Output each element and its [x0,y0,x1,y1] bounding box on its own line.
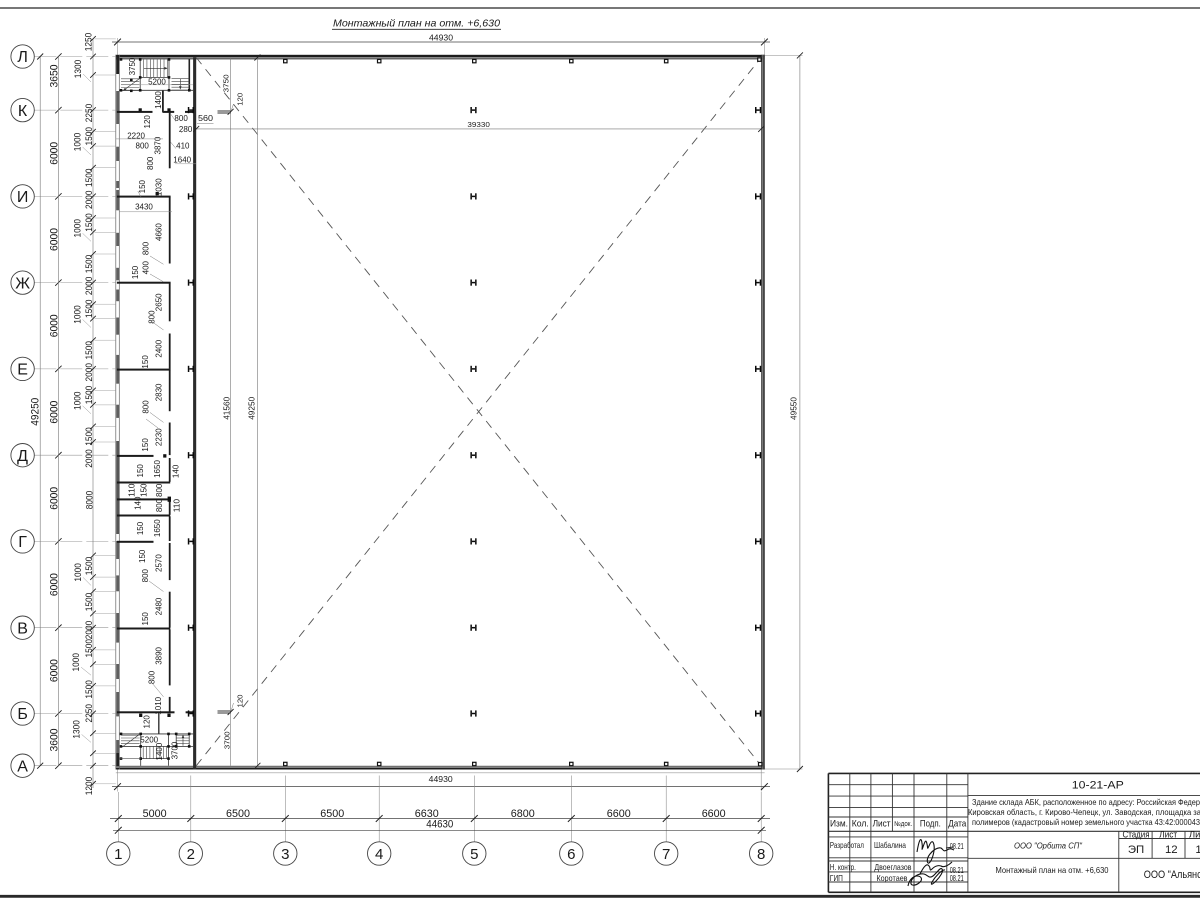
svg-text:А: А [17,758,28,775]
svg-text:800: 800 [140,569,150,583]
svg-text:1500: 1500 [84,386,95,405]
svg-text:ЭП: ЭП [1128,844,1144,856]
svg-text:1400: 1400 [153,91,163,109]
svg-text:1000: 1000 [73,133,84,152]
svg-text:1000: 1000 [73,563,84,582]
svg-text:150: 150 [137,180,147,194]
svg-text:44630: 44630 [426,819,453,831]
svg-text:150: 150 [137,549,147,563]
svg-text:2: 2 [187,846,195,863]
svg-text:Монтажный план на отм. +6,630: Монтажный план на отм. +6,630 [333,19,500,30]
svg-text:800: 800 [141,242,151,256]
svg-text:1300: 1300 [73,60,84,79]
svg-text:1500: 1500 [84,427,95,446]
svg-text:Лист: Лист [1159,829,1178,839]
svg-text:44930: 44930 [429,33,453,42]
svg-text:3: 3 [281,846,289,863]
svg-text:Разработал: Разработал [830,840,864,850]
svg-text:К: К [18,103,28,120]
svg-text:12: 12 [1165,844,1178,856]
svg-text:6000: 6000 [48,573,60,596]
svg-text:2480: 2480 [154,597,164,615]
svg-text:1: 1 [114,846,122,863]
svg-text:1500: 1500 [84,341,95,360]
svg-text:Ж: Ж [15,275,30,292]
svg-text:2000: 2000 [84,449,95,468]
svg-text:49550: 49550 [789,396,798,420]
svg-text:800: 800 [174,113,188,123]
svg-text:3650: 3650 [48,65,60,88]
svg-text:2250: 2250 [84,104,95,123]
svg-text:Коротаев: Коротаев [877,873,909,883]
svg-text:3700: 3700 [170,741,180,759]
svg-text:1500: 1500 [84,255,95,274]
svg-text:полимеров (кадастровый номер з: полимеров (кадастровый номер земельного … [972,817,1200,827]
svg-text:№док.: №док. [894,821,912,828]
svg-text:6000: 6000 [48,142,60,165]
svg-text:Г: Г [18,534,27,551]
svg-text:Д: Д [17,448,28,465]
svg-text:8000: 8000 [85,491,96,510]
svg-text:1030: 1030 [153,178,163,196]
svg-text:3870: 3870 [152,136,162,154]
svg-text:49250: 49250 [248,396,257,420]
svg-text:6000: 6000 [48,228,60,251]
svg-text:1250: 1250 [84,33,95,52]
svg-text:39330: 39330 [467,120,490,129]
svg-text:150: 150 [140,612,150,626]
svg-text:410: 410 [176,140,190,150]
svg-text:110: 110 [172,499,182,513]
svg-text:2650: 2650 [153,293,163,311]
svg-text:Дата: Дата [948,819,967,829]
svg-text:1640: 1640 [173,155,191,165]
svg-text:Лис: Лис [1189,829,1200,839]
svg-text:5200: 5200 [148,77,166,87]
svg-text:150: 150 [135,522,145,536]
svg-text:150: 150 [138,483,148,497]
svg-text:6600: 6600 [607,808,631,820]
svg-text:6800: 6800 [511,808,535,820]
svg-text:44930: 44930 [429,775,453,784]
svg-text:Н. контр.: Н. контр. [830,862,856,872]
svg-text:3890: 3890 [154,647,164,665]
svg-text:800: 800 [140,400,150,414]
svg-text:ООО "Орбита СП": ООО "Орбита СП" [1014,840,1083,850]
svg-text:140: 140 [133,496,143,510]
svg-text:120: 120 [236,93,245,106]
svg-text:120: 120 [142,715,152,729]
svg-text:Здание склада АБК, расположенн: Здание склада АБК, расположенное по адре… [972,797,1200,807]
svg-text:10-21-АР: 10-21-АР [1072,779,1124,791]
svg-text:Кол.: Кол. [852,819,869,829]
svg-text:4: 4 [375,846,383,863]
svg-text:800: 800 [136,141,150,151]
svg-text:1000: 1000 [73,305,84,324]
svg-text:1500: 1500 [84,593,95,612]
svg-text:5000: 5000 [143,808,167,820]
svg-text:280: 280 [179,124,193,134]
svg-text:2230: 2230 [153,428,163,446]
svg-text:1010: 1010 [153,697,163,715]
svg-text:1000: 1000 [73,392,84,411]
svg-text:3700: 3700 [222,731,231,749]
svg-text:110: 110 [126,483,136,497]
svg-text:1300: 1300 [72,720,83,739]
svg-text:6: 6 [567,846,575,863]
svg-text:6500: 6500 [226,808,250,820]
svg-text:1500: 1500 [84,680,95,699]
svg-text:1500: 1500 [84,127,95,146]
svg-text:Шабалина: Шабалина [874,840,906,850]
svg-text:8: 8 [757,846,765,863]
svg-text:800: 800 [145,156,155,170]
svg-text:3430: 3430 [135,202,153,212]
svg-text:6000: 6000 [48,659,60,682]
svg-text:150: 150 [140,355,150,369]
svg-text:2570: 2570 [154,554,164,572]
svg-text:140: 140 [171,464,181,478]
svg-text:2400: 2400 [153,340,163,358]
svg-text:1000: 1000 [73,219,84,238]
svg-text:800: 800 [146,671,156,685]
svg-text:41560: 41560 [223,396,232,420]
svg-text:1500: 1500 [84,213,95,232]
svg-text:3750: 3750 [127,57,137,75]
svg-text:Изм.: Изм. [830,819,848,829]
svg-text:ГИП: ГИП [830,873,843,883]
svg-text:150: 150 [135,464,145,478]
svg-text:2220: 2220 [127,131,145,141]
svg-text:2000: 2000 [84,277,95,296]
svg-text:Двоеглазов: Двоеглазов [874,862,911,872]
svg-text:6000: 6000 [48,487,60,510]
svg-text:Кировская область, г. Кирово-Ч: Кировская область, г. Кирово-Чепецк, ул.… [968,807,1200,817]
svg-text:1500: 1500 [84,299,95,318]
svg-text:120: 120 [235,695,244,708]
svg-text:Лист: Лист [873,819,892,829]
svg-text:ООО "Альянс: ООО "Альянс [1144,869,1200,881]
svg-text:6500: 6500 [320,808,344,820]
svg-text:1: 1 [1195,844,1200,856]
svg-text:800: 800 [154,499,164,513]
svg-text:49250: 49250 [29,398,41,426]
svg-text:6000: 6000 [48,401,60,424]
svg-text:150: 150 [130,265,140,279]
svg-text:1500: 1500 [84,557,95,576]
svg-text:И: И [17,189,29,206]
svg-text:4660: 4660 [153,223,163,241]
svg-text:1500: 1500 [84,168,95,187]
svg-text:560: 560 [198,114,213,123]
svg-text:2000: 2000 [84,363,95,382]
svg-text:В: В [17,620,28,637]
svg-text:3600: 3600 [48,729,60,752]
svg-text:1200: 1200 [84,777,95,796]
svg-text:Подп.: Подп. [920,819,941,829]
svg-text:6600: 6600 [702,808,726,820]
svg-text:1400: 1400 [154,742,164,760]
svg-text:7: 7 [662,846,670,863]
svg-text:1000: 1000 [71,653,82,672]
svg-text:Б: Б [17,706,28,723]
svg-text:800: 800 [154,483,164,497]
svg-text:1500: 1500 [84,639,95,658]
svg-text:120: 120 [142,115,152,129]
svg-text:2000: 2000 [84,190,95,209]
svg-text:Стадия: Стадия [1123,829,1150,839]
svg-text:6000: 6000 [48,314,60,337]
svg-text:2000: 2000 [84,621,95,640]
svg-text:3750: 3750 [221,74,230,92]
svg-text:400: 400 [141,261,151,275]
svg-text:2830: 2830 [153,383,163,401]
svg-text:150: 150 [140,438,150,452]
svg-text:2250: 2250 [84,704,95,723]
svg-text:1650: 1650 [152,460,162,478]
svg-text:Л: Л [17,49,28,66]
svg-text:Монтажный план на отм. +6,630: Монтажный план на отм. +6,630 [996,865,1109,875]
svg-text:08.21: 08.21 [950,873,964,883]
svg-text:1650: 1650 [152,519,162,537]
svg-text:Е: Е [17,362,28,379]
svg-text:5: 5 [470,846,478,863]
